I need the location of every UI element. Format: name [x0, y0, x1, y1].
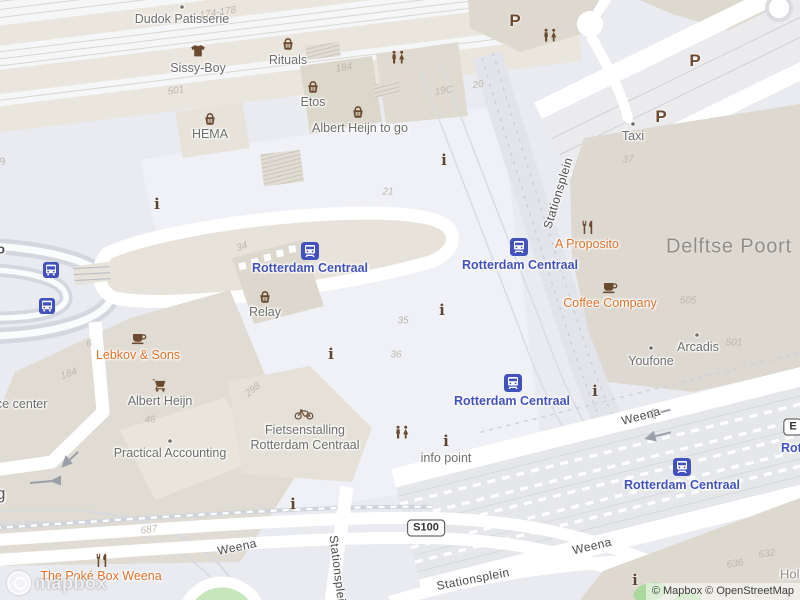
shirt-icon [190, 45, 206, 58]
street-label: Weena [571, 535, 613, 558]
road-shield-s100: S100 [407, 520, 445, 537]
poi-label: FietsenstallingRotterdam Centraal [250, 423, 359, 453]
house-number: 21 [382, 187, 393, 198]
info-icon: i [328, 345, 334, 363]
house-number: 46 [144, 415, 155, 426]
cup-icon [131, 332, 147, 345]
house-number: 501 [726, 338, 743, 349]
house-number: 298 [243, 380, 263, 399]
house-number: 9 [0, 156, 8, 168]
poi-label: Taxi [622, 129, 644, 143]
basket-icon [203, 112, 218, 126]
dot-icon [630, 121, 637, 128]
poi-label: Youfone [628, 354, 673, 368]
house-number: 505 [680, 296, 697, 307]
info-icon: i [632, 571, 638, 589]
mapbox-logo-icon [7, 571, 31, 595]
station-label: Rotterdam Centraal [462, 258, 578, 272]
house-number: 6 [86, 339, 92, 350]
edge-label: g [0, 484, 5, 504]
train-station-icon [673, 458, 691, 476]
restaurant-icon [581, 220, 594, 234]
dot-icon [179, 4, 186, 11]
poi-label: A Proposito [555, 237, 619, 251]
road-shield-e: E [783, 419, 800, 436]
poi-label: Relay [249, 305, 281, 319]
edge-label: Rotterdam Centraal [781, 441, 800, 455]
house-number: 687 [140, 523, 158, 536]
street-label: Stationsplein [327, 534, 350, 600]
house-number: 35 [397, 316, 408, 327]
map-attribution[interactable]: © Mapbox © OpenStreetMap [646, 583, 800, 600]
street-label: Weena [216, 536, 258, 558]
house-number: 632 [758, 547, 776, 560]
parking-icon: P [655, 107, 666, 127]
toilets-icon [542, 29, 559, 42]
poi-label: Albert Heijn to go [312, 121, 408, 135]
info-icon: i [592, 382, 598, 400]
train-station-icon [301, 242, 319, 260]
info-icon: i [439, 301, 445, 319]
poi-label: Coffee Company [563, 296, 657, 310]
poi-label: Rituals [269, 53, 307, 67]
street-label: Stationsplein [435, 565, 510, 593]
basket-icon [258, 290, 273, 304]
basket-icon [306, 80, 321, 94]
toilets-icon [390, 51, 407, 64]
house-number: 37 [622, 155, 633, 166]
cup-icon [602, 281, 618, 294]
info-icon: i [443, 432, 449, 450]
info-icon: i [154, 195, 160, 213]
poi-label: info point [421, 451, 472, 465]
poi-label: Practical Accounting [114, 446, 227, 460]
train-station-icon [510, 238, 528, 256]
dot-icon [694, 332, 701, 339]
poi-label: Etos [300, 95, 325, 109]
poi-label: Arcadis [677, 340, 719, 354]
info-icon: i [290, 495, 296, 513]
edge-label: o [0, 242, 5, 257]
house-number: 501 [167, 84, 185, 97]
house-number: 36 [390, 350, 401, 361]
station-label: Rotterdam Centraal [624, 478, 740, 492]
station-label: Rotterdam Centraal [252, 261, 368, 275]
edge-label: Holland [780, 567, 800, 582]
house-number: 20 [472, 79, 485, 91]
street-label: Weena [620, 404, 662, 428]
cart-icon [151, 378, 167, 392]
house-number: 19C [434, 84, 454, 97]
house-number: 184 [59, 366, 78, 382]
info-icon: i [441, 151, 447, 169]
poi-label: HEMA [192, 127, 228, 141]
bus-icon [39, 298, 55, 314]
mapbox-logo-text: mapbox [35, 573, 107, 594]
house-number: 34 [235, 240, 249, 254]
train-station-icon [504, 374, 522, 392]
toilets-icon [394, 426, 411, 439]
basket-icon [351, 105, 366, 119]
bicycle-icon [294, 408, 314, 420]
poi-label: Lebkov & Sons [96, 348, 180, 362]
parking-icon: P [689, 51, 700, 71]
dot-icon [648, 345, 655, 352]
map-canvas[interactable]: Dudok PatisserieSissy-BoyRitualsEtosHEMA… [0, 0, 800, 600]
basket-icon [281, 37, 296, 51]
bus-icon [43, 262, 59, 278]
mapbox-logo[interactable]: mapbox [7, 571, 107, 595]
parking-icon: P [509, 11, 520, 31]
poi-label: Albert Heijn [128, 394, 193, 408]
poi-layer: Dudok PatisserieSissy-BoyRitualsEtosHEMA… [0, 0, 800, 600]
house-number: 636 [726, 557, 744, 570]
poi-label: Sissy-Boy [170, 61, 226, 75]
building-label-delftse-poort: Delftse Poort [666, 236, 792, 259]
station-label: Rotterdam Centraal [454, 394, 570, 408]
restaurant-icon [95, 553, 108, 567]
dot-icon [167, 438, 174, 445]
edge-label: ce center [0, 397, 47, 411]
street-label: Stationsplein [540, 156, 575, 231]
house-number: 184 [335, 61, 353, 74]
